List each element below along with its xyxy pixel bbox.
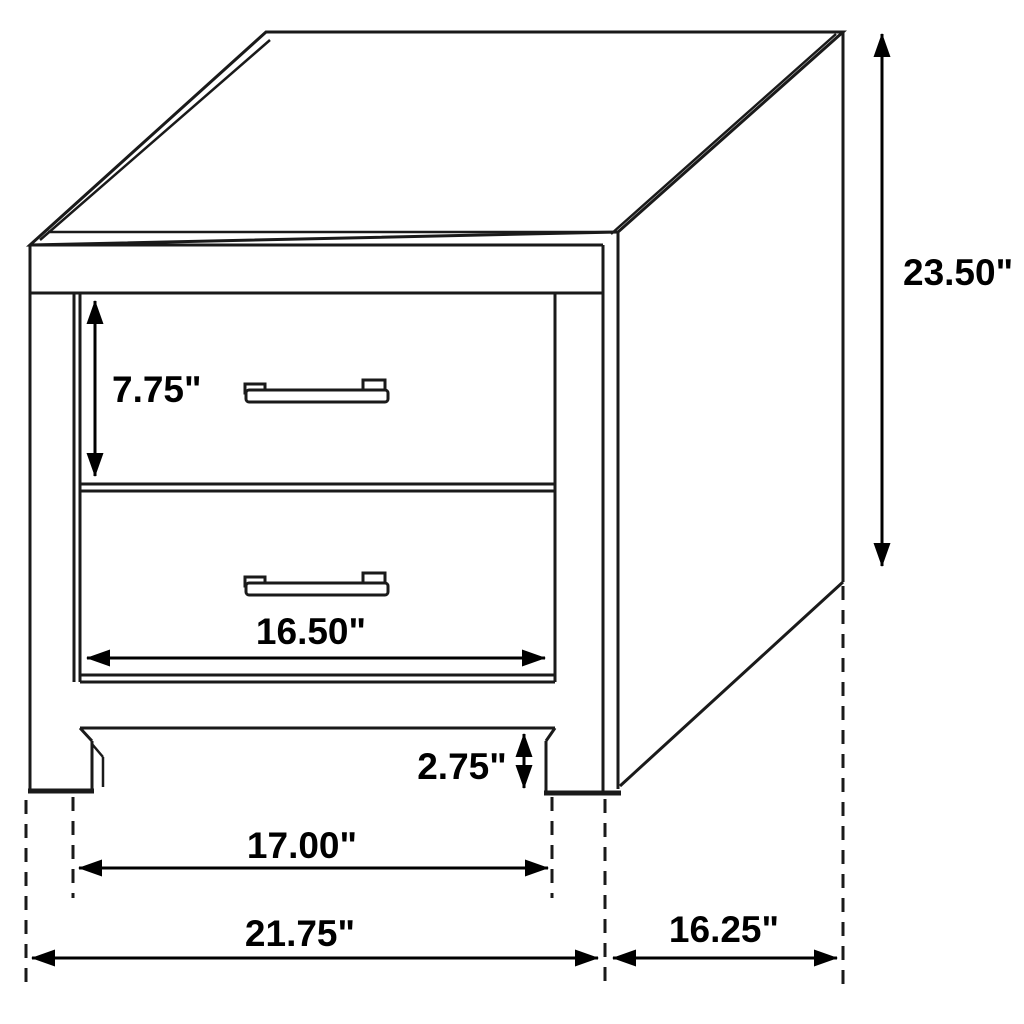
dim-label-overall-width: 21.75": [245, 913, 355, 954]
left-leg-bevel: [80, 728, 92, 741]
dimension-depth: 16.25": [613, 909, 837, 958]
drawer-2: [245, 573, 388, 595]
right-leg-bevel: [546, 728, 555, 741]
drawer-1: [245, 380, 388, 402]
dim-label-drawer-width: 16.50": [256, 611, 366, 652]
dim-label-overall-height: 23.50": [903, 252, 1013, 293]
drawer-1-handle: [245, 380, 388, 402]
dimension-leg-clearance: 2.75": [417, 734, 524, 788]
nightstand-outline: [28, 32, 843, 793]
top-left-edge-inner: [40, 40, 270, 240]
dim-label-leg-clearance: 2.75": [417, 746, 507, 787]
dimension-overall-width: 21.75": [32, 913, 598, 958]
dimension-drawer-height: 7.75": [95, 301, 202, 476]
top-face: [30, 32, 843, 245]
dim-label-inner-width: 17.00": [247, 825, 357, 866]
nightstand-dimension-diagram: 23.50" 7.75" 16.50" 2.75" 17.00" 21.75" …: [0, 0, 1024, 1024]
left-leg-side-bevel: [92, 744, 103, 757]
dim-label-drawer-height: 7.75": [112, 369, 202, 410]
dimension-overall-height: 23.50": [882, 34, 1013, 566]
dimension-drawer-width: 16.50": [87, 611, 545, 658]
dimension-inner-width: 17.00": [79, 825, 548, 868]
drawer-2-handle: [245, 573, 388, 595]
diagram-canvas: 23.50" 7.75" 16.50" 2.75" 17.00" 21.75" …: [0, 0, 1024, 1024]
top-right-edge-inner: [611, 34, 836, 234]
dim-label-depth: 16.25": [669, 909, 779, 950]
side-bottom-edge: [620, 582, 843, 786]
